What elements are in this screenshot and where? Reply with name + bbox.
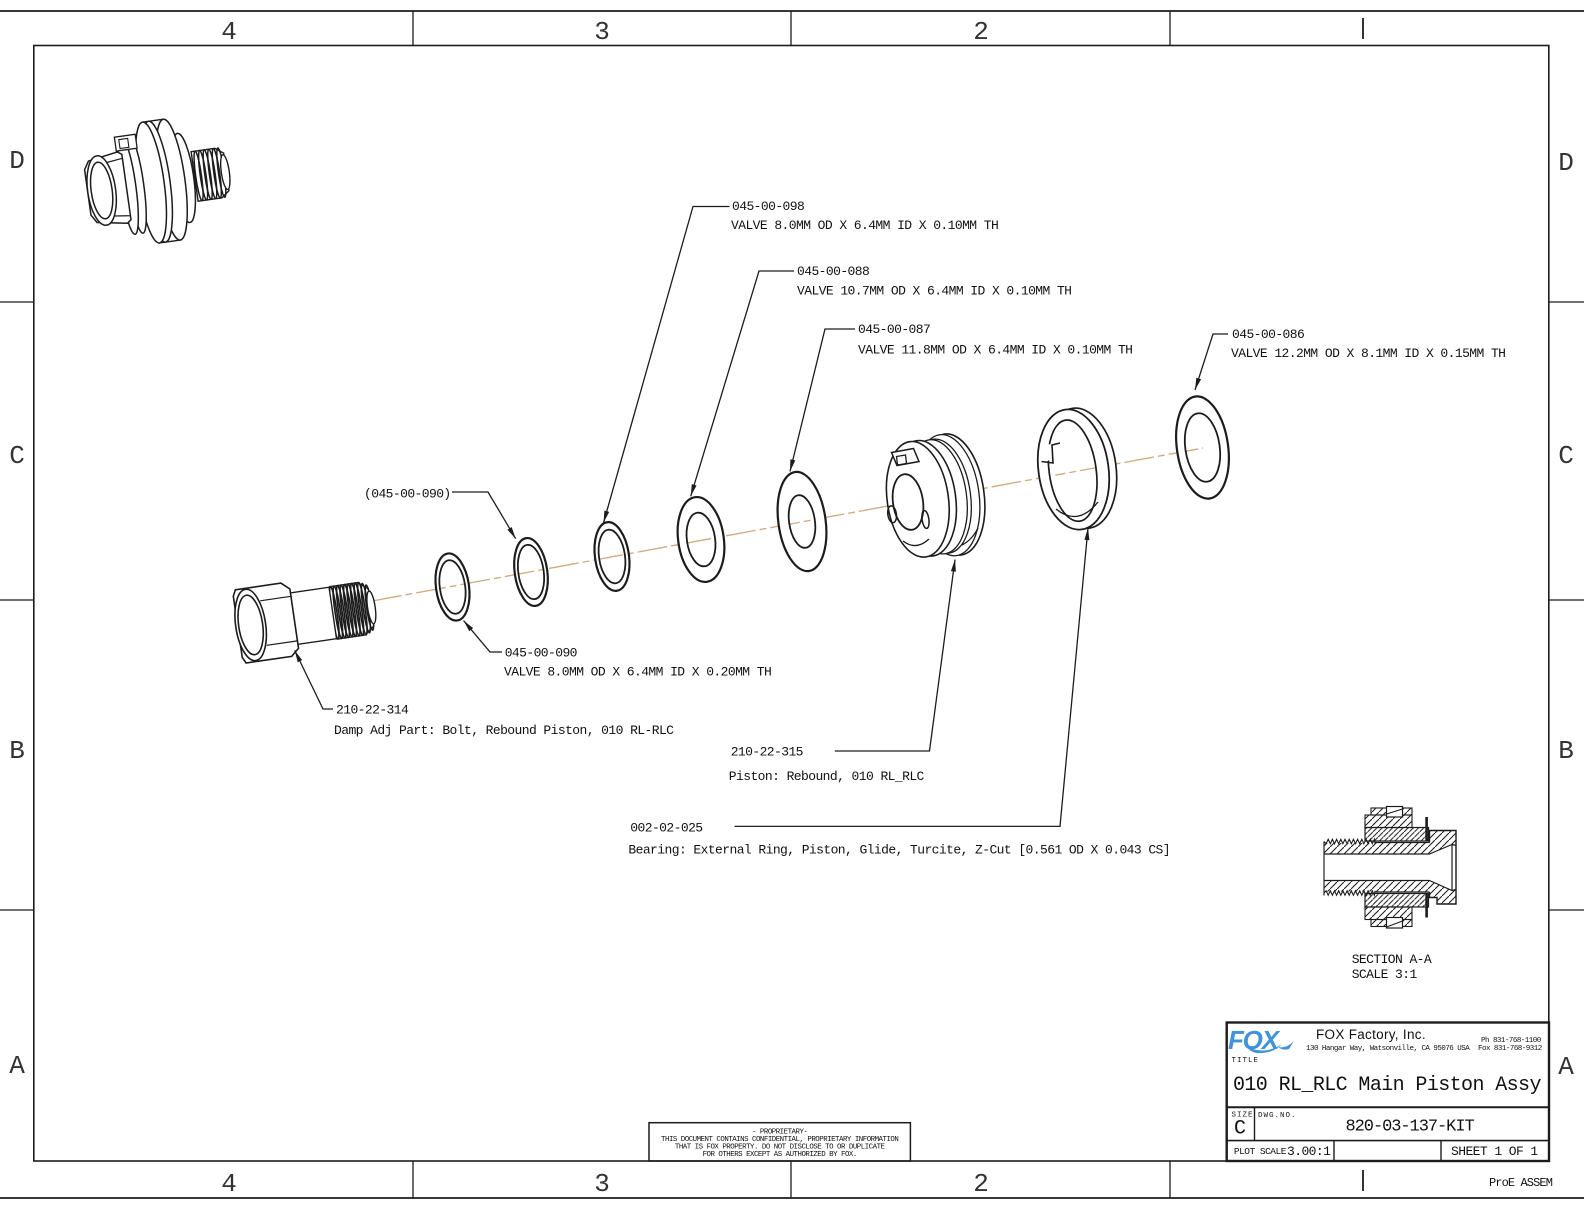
svg-text:045-00-088: 045-00-088 [797, 264, 869, 279]
svg-text:045-00-090: 045-00-090 [505, 646, 577, 661]
svg-text:SECTION A-A: SECTION A-A [1352, 952, 1432, 967]
svg-text:C: C [9, 441, 25, 471]
svg-text:B: B [1558, 736, 1574, 766]
svg-text:210-22-314: 210-22-314 [336, 703, 409, 718]
svg-text:820-03-137-KIT: 820-03-137-KIT [1346, 1118, 1475, 1137]
svg-text:3: 3 [594, 1169, 610, 1199]
svg-text:4: 4 [221, 1169, 237, 1199]
svg-text:VALVE 12.2MM OD X 8.1MM ID X 0: VALVE 12.2MM OD X 8.1MM ID X 0.15MM TH [1231, 346, 1505, 361]
svg-text:C: C [1558, 441, 1574, 471]
svg-text:045-00-098: 045-00-098 [732, 199, 804, 214]
svg-text:2: 2 [973, 1169, 989, 1199]
svg-text:A: A [1558, 1052, 1574, 1082]
svg-text:SHEET 1 OF 1: SHEET 1 OF 1 [1451, 1144, 1538, 1159]
svg-text:Damp Adj Part: Bolt, Rebound P: Damp Adj Part: Bolt, Rebound Piston, 010… [334, 723, 674, 738]
svg-text:C: C [1234, 1118, 1246, 1141]
svg-text:B: B [9, 736, 25, 766]
svg-text:PLOT SCALE: PLOT SCALE [1234, 1146, 1287, 1157]
svg-text:D: D [9, 146, 25, 176]
svg-text:Piston: Rebound, 010 RL_RLC: Piston: Rebound, 010 RL_RLC [729, 769, 925, 784]
svg-text:DWG.NO.: DWG.NO. [1258, 1112, 1297, 1120]
svg-text:3: 3 [594, 17, 610, 47]
svg-text:045-00-087: 045-00-087 [858, 322, 930, 337]
svg-text:TITLE: TITLE [1232, 1057, 1260, 1065]
svg-text:Bearing: External Ring, Piston: Bearing: External Ring, Piston, Glide, T… [628, 843, 1170, 858]
svg-text:045-00-086: 045-00-086 [1232, 327, 1304, 342]
svg-text:210-22-315: 210-22-315 [731, 745, 803, 760]
svg-text:VALVE 11.8MM OD X 6.4MM ID X 0: VALVE 11.8MM OD X 6.4MM ID X 0.10MM TH [858, 343, 1132, 358]
svg-text:VALVE 8.0MM OD X 6.4MM ID X 0.: VALVE 8.0MM OD X 6.4MM ID X 0.20MM TH [504, 665, 771, 680]
svg-text:(045-00-090): (045-00-090) [364, 487, 451, 502]
svg-text:FOR OTHERS EXCEPT AS AUTHORIZE: FOR OTHERS EXCEPT AS AUTHORIZED BY FOX. [703, 1151, 857, 1159]
svg-text:VALVE 8.0MM OD X 6.4MM ID X 0.: VALVE 8.0MM OD X 6.4MM ID X 0.10MM TH [731, 218, 998, 233]
svg-text:2: 2 [973, 17, 989, 47]
svg-text:130 Hangar Way, Watsonville, C: 130 Hangar Way, Watsonville, CA 95076 US… [1306, 1045, 1470, 1053]
svg-text:A: A [9, 1051, 25, 1081]
svg-text:010 RL_RLC Main Piston Assy: 010 RL_RLC Main Piston Assy [1233, 1074, 1541, 1097]
svg-text:FOX Factory, Inc.: FOX Factory, Inc. [1316, 1027, 1426, 1042]
svg-text:D: D [1558, 148, 1574, 178]
svg-text:Ph 831-768-1100: Ph 831-768-1100 [1481, 1037, 1542, 1045]
svg-text:Fox 831-768-9312: Fox 831-768-9312 [1478, 1045, 1542, 1053]
svg-text:ProE ASSEM: ProE ASSEM [1489, 1176, 1553, 1190]
svg-text:SCALE 3:1: SCALE 3:1 [1352, 967, 1418, 982]
svg-text:VALVE 10.7MM OD X 6.4MM ID X 0: VALVE 10.7MM OD X 6.4MM ID X 0.10MM TH [797, 284, 1071, 299]
svg-text:002-02-025: 002-02-025 [630, 821, 702, 836]
svg-text:3.00:1: 3.00:1 [1287, 1144, 1331, 1159]
svg-text:4: 4 [221, 17, 237, 47]
